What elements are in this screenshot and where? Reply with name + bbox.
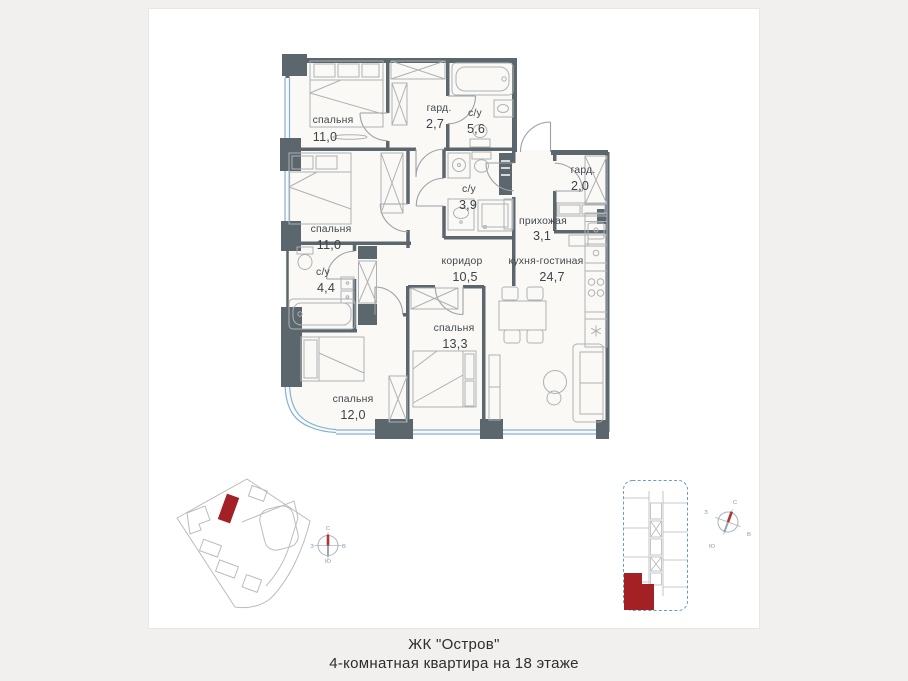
floor-plan-svg: спальня 11,0 гард. 2,7 с/у 5,6 спальня 1… <box>148 8 762 631</box>
compass-needle-south <box>724 522 728 532</box>
room-area-bedroom-2: 11,0 <box>317 238 341 252</box>
plan-card: спальня 11,0 гард. 2,7 с/у 5,6 спальня 1… <box>148 8 760 629</box>
apartment-subtitle: 4-комнатная квартира на 18 этаже <box>0 654 908 673</box>
project-title: ЖК "Остров" <box>0 635 908 654</box>
compass-north-label: С <box>733 500 738 506</box>
compass-north-label: С <box>326 526 331 532</box>
site-plan-highlighted-building <box>218 494 239 524</box>
key-plan-highlighted-unit <box>624 573 654 610</box>
room-area-bathroom-3: 4,4 <box>317 281 335 295</box>
compass-south-label: Ю <box>325 559 331 565</box>
room-label-bathroom-3: с/у <box>316 267 330 278</box>
room-area-wardrobe-2: 2,0 <box>571 179 589 193</box>
room-label-bathroom-2: с/у <box>462 184 476 195</box>
key-plan <box>624 481 688 611</box>
room-label-corridor: коридор <box>441 256 482 267</box>
room-area-bedroom-1: 11,0 <box>313 130 337 144</box>
room-label-wardrobe-2: гард. <box>571 165 596 176</box>
room-label-bedroom-4: спальня <box>333 394 374 405</box>
room-area-bathroom-1: 5,6 <box>467 122 485 136</box>
room-area-wardrobe-1: 2,7 <box>426 117 444 131</box>
compass-keyplan: С З В Ю <box>704 500 751 550</box>
compass-east-label: В <box>342 544 346 550</box>
room-label-bedroom-3: спальня <box>434 323 475 334</box>
page-background: { "page": { "background": "#f1f0ee", "ca… <box>0 0 908 681</box>
compass-site: С З В Ю <box>310 526 346 565</box>
room-area-bedroom-4: 12,0 <box>340 408 365 422</box>
room-label-bathroom-1: с/у <box>468 108 482 119</box>
room-label-bedroom-1: спальня <box>313 115 354 126</box>
compass-south-label: Ю <box>709 544 715 550</box>
room-label-bedroom-2: спальня <box>311 224 352 235</box>
room-area-hallway: 3,1 <box>533 229 551 243</box>
site-plan <box>177 479 310 608</box>
room-label-hallway: прихожая <box>519 216 567 227</box>
compass-west-label: З <box>704 510 708 516</box>
room-label-wardrobe-1: гард. <box>427 103 452 114</box>
compass-west-label: З <box>310 544 314 550</box>
caption: ЖК "Остров" 4-комнатная квартира на 18 э… <box>0 635 908 673</box>
room-area-bedroom-3: 13,3 <box>442 337 467 351</box>
room-area-bathroom-2: 3,9 <box>459 198 477 212</box>
room-area-kitchen-living: 24,7 <box>539 270 564 284</box>
compass-east-label: В <box>747 532 751 538</box>
room-area-corridor: 10,5 <box>452 270 477 284</box>
room-label-kitchen-living: кухня-гостиная <box>509 256 584 267</box>
compass-needle-north <box>728 512 732 522</box>
